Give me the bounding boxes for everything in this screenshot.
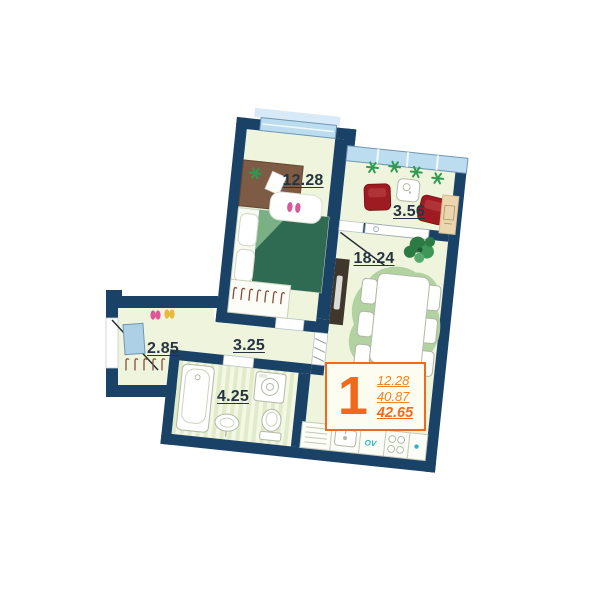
apartment-summary-badge: 1 12.28 40.87 42.65 bbox=[325, 362, 426, 431]
floorplan-canvas: OV 12.28 3.56 bbox=[0, 0, 616, 616]
area-list: 12.28 40.87 42.65 bbox=[377, 373, 413, 421]
dining-table bbox=[369, 273, 430, 368]
living-door bbox=[312, 332, 328, 365]
floorplan-drawing: OV bbox=[0, 0, 616, 616]
area-usable: 40.87 bbox=[377, 389, 413, 404]
dining-set bbox=[353, 271, 442, 377]
area-total: 42.65 bbox=[377, 405, 413, 421]
room-label-bathroom: 4.25 bbox=[217, 388, 249, 406]
washing-machine bbox=[253, 371, 286, 403]
armchair bbox=[364, 184, 391, 211]
room-label-living-kitchen: 18.24 bbox=[353, 250, 394, 268]
bedroom-rug bbox=[269, 191, 324, 224]
room-label-hallway: 3.25 bbox=[233, 337, 265, 355]
loggia-desk bbox=[439, 195, 459, 234]
pillow bbox=[238, 213, 259, 247]
room-label-loggia: 3.56 bbox=[393, 203, 425, 221]
area-living: 12.28 bbox=[377, 373, 413, 388]
bathtub bbox=[176, 364, 215, 433]
bedroom-door bbox=[275, 317, 304, 331]
wardrobe bbox=[228, 279, 291, 318]
oven-label: OV bbox=[364, 438, 377, 448]
room-label-bedroom: 12.28 bbox=[282, 172, 323, 190]
entry-mirror bbox=[123, 323, 145, 354]
rooms-count: 1 bbox=[338, 374, 368, 420]
room-label-entry: 2.85 bbox=[147, 340, 179, 358]
pillow bbox=[234, 249, 255, 283]
coffee-table bbox=[396, 178, 420, 202]
